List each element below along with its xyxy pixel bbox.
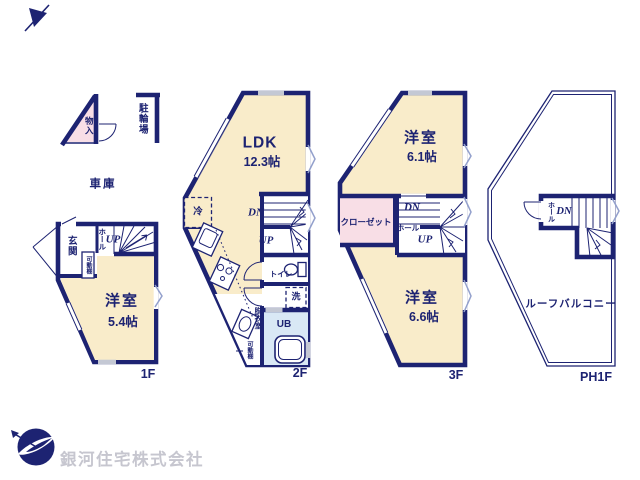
label-3f-bedroom1-size: 6.1帖 bbox=[407, 151, 437, 164]
label-3f-hall: ホール bbox=[397, 224, 420, 232]
label-1f-storage: 物入 bbox=[85, 117, 94, 136]
label-3f-bedroom2: 洋室 bbox=[405, 291, 439, 306]
label-2f-dressing-room: 脱衣室 bbox=[254, 307, 262, 330]
label-1f-bicycle-parking: 駐輪場 bbox=[137, 103, 147, 135]
label-1f-entrance: 玄関 bbox=[66, 236, 76, 257]
floor3-label: 3F bbox=[449, 369, 464, 382]
label-3f-bedroom2-size: 6.6帖 bbox=[409, 311, 439, 324]
floorplan-canvas: 物入 駐輪場 車庫 玄関 ホール UP 可動棚 洋室 5.4帖 1F LDK 1… bbox=[0, 0, 640, 480]
label-1f-bedroom-size: 5.4帖 bbox=[108, 316, 138, 329]
bathtub bbox=[275, 336, 305, 363]
label-2f-dn: DN bbox=[248, 208, 264, 219]
penthouse-door-arc bbox=[524, 202, 541, 219]
label-3f-closet: クローゼット bbox=[340, 218, 391, 227]
label-2f-fridge: 冷 bbox=[193, 207, 203, 217]
label-ph-dn: DN bbox=[556, 207, 571, 218]
label-2f-laundry: 洗 bbox=[291, 293, 300, 302]
label-2f-toilet: トイレ bbox=[270, 270, 293, 278]
label-2f-ldk-size: 12.3帖 bbox=[244, 156, 281, 169]
floorph-linework bbox=[488, 91, 619, 366]
floor2-label: 2F bbox=[293, 367, 308, 380]
company-name: 銀河住宅株式会社 bbox=[60, 452, 204, 469]
north-arrow-icon bbox=[25, 5, 49, 31]
label-1f-hall: ホール bbox=[98, 228, 106, 251]
label-1f-up: UP bbox=[106, 235, 121, 246]
label-3f-dn: DN bbox=[404, 203, 420, 214]
company-logo bbox=[11, 429, 55, 466]
floor2-linework bbox=[184, 91, 315, 365]
label-2f-ldk: LDK bbox=[243, 135, 278, 151]
floor1-label: 1F bbox=[141, 368, 156, 381]
label-3f-up: UP bbox=[418, 235, 433, 246]
label-1f-bedroom: 洋室 bbox=[105, 294, 139, 309]
label-ph-hall: ホール bbox=[548, 202, 555, 223]
label-1f-garage: 車庫 bbox=[90, 179, 117, 191]
label-2f-shelf: 可動棚 bbox=[246, 341, 252, 359]
label-2f-unit-bath: UB bbox=[277, 320, 291, 330]
storage-door-arc bbox=[99, 124, 116, 141]
floorplan-drawing bbox=[0, 0, 640, 480]
label-1f-shelf: 可動棚 bbox=[85, 256, 91, 274]
floorph-label: PH1F bbox=[580, 371, 612, 384]
label-3f-bedroom1: 洋室 bbox=[404, 131, 438, 146]
label-ph-roof-balcony: ルーフバルコニー bbox=[525, 299, 616, 310]
label-2f-up: UP bbox=[259, 236, 274, 247]
